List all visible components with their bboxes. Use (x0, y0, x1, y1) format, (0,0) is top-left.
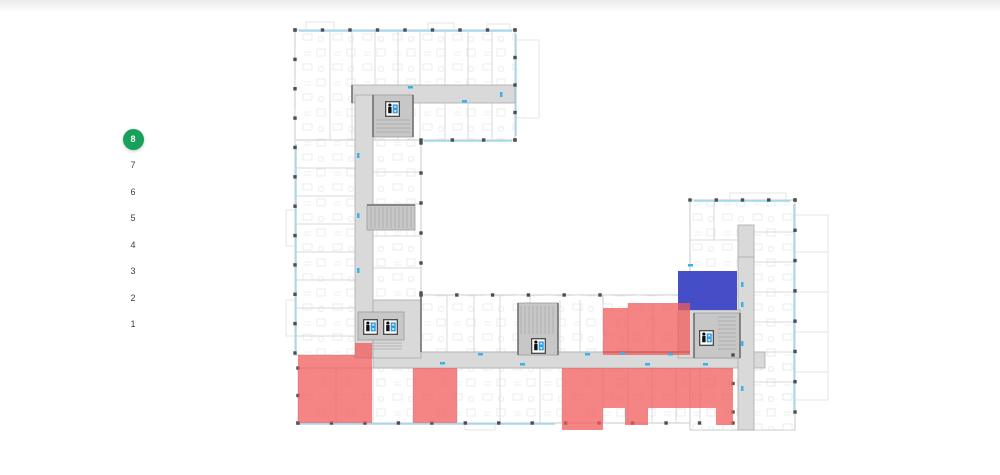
elevator-icon (700, 331, 714, 346)
elevator-icon (532, 339, 546, 354)
floor-plan-canvas (0, 0, 1000, 475)
elevator-icon (386, 102, 400, 117)
unit-unavailable-d[interactable] (625, 408, 648, 425)
unit-unavailable-d[interactable] (716, 408, 733, 425)
unit-unavailable-c[interactable] (603, 308, 628, 355)
elevator-icon (364, 320, 378, 335)
unit-unavailable-d[interactable] (603, 368, 733, 408)
floor-plan-viewer: 87654321 (0, 0, 1000, 475)
floor-plan (0, 0, 1000, 475)
unit-unavailable-d[interactable] (562, 368, 603, 430)
elevator-icon (384, 320, 398, 335)
unit-unavailable-a[interactable] (355, 343, 372, 355)
unit-unavailable-c[interactable] (628, 303, 690, 355)
unit-unavailable-a[interactable] (298, 355, 372, 423)
unit-unavailable-b[interactable] (413, 368, 457, 423)
